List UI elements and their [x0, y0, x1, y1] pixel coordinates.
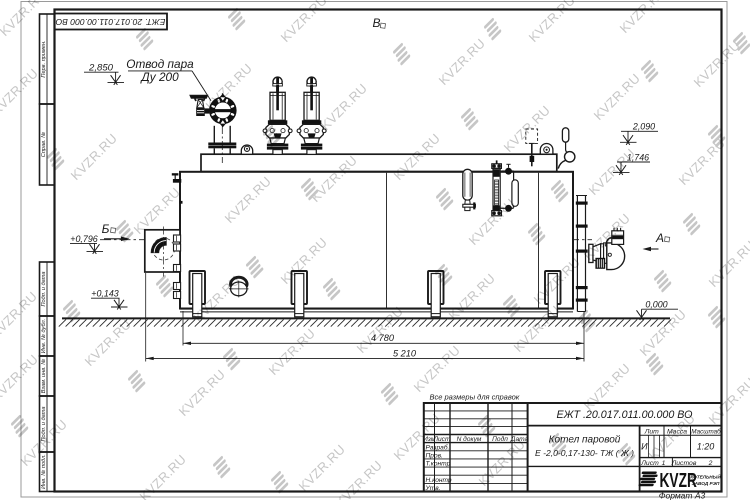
- svg-text:+0,796: +0,796: [70, 234, 97, 244]
- svg-text:KVZR.RU: KVZR.RU: [436, 36, 488, 88]
- svg-text:KVZR.RU: KVZR.RU: [333, 458, 385, 500]
- svg-text:Взам. инв. №: Взам. инв. №: [41, 359, 47, 394]
- svg-text:Подп. и дата: Подп. и дата: [41, 271, 47, 306]
- svg-text:KVZR.RU: KVZR.RU: [617, 0, 669, 36]
- svg-text:KVZR.RU: KVZR.RU: [591, 71, 643, 123]
- svg-text:KVZR.RU: KVZR.RU: [581, 361, 633, 413]
- svg-text:KVZR.RU: KVZR.RU: [706, 238, 750, 290]
- svg-text:1: 1: [662, 460, 666, 467]
- svg-text:0,000: 0,000: [645, 300, 667, 310]
- svg-text:Инв. № подл.: Инв. № подл.: [41, 454, 47, 489]
- svg-text:Формат А3: Формат А3: [659, 491, 706, 500]
- svg-text:1:20: 1:20: [697, 442, 715, 452]
- svg-text:Инв. № дубл.: Инв. № дубл.: [41, 319, 47, 353]
- svg-text:Подп: Подп: [492, 435, 508, 443]
- svg-text:KVZR.RU: KVZR.RU: [586, 146, 638, 198]
- svg-text:Масштаб: Масштаб: [691, 427, 721, 435]
- svg-text:KVZR.RU: KVZR.RU: [278, 0, 330, 45]
- svg-text:2,090: 2,090: [632, 122, 655, 132]
- svg-text:KVZR.RU: KVZR.RU: [266, 326, 318, 378]
- svg-text:ЗАВОД РЭП: ЗАВОД РЭП: [692, 481, 720, 486]
- svg-text:KVZR.RU: KVZR.RU: [137, 452, 189, 500]
- svg-text:KVZR.RU: KVZR.RU: [318, 81, 370, 133]
- svg-text:2: 2: [708, 460, 713, 467]
- svg-text:KVZR.RU: KVZR.RU: [411, 343, 463, 395]
- svg-text:KVZR.RU: KVZR.RU: [176, 367, 228, 419]
- svg-text:KVZR.RU: KVZR.RU: [0, 289, 40, 341]
- svg-text:В: В: [372, 16, 380, 30]
- svg-text:KVZR.RU: KVZR.RU: [526, 0, 578, 45]
- svg-text:Ду 200: Ду 200: [139, 70, 179, 84]
- svg-text:N докум: N докум: [457, 435, 482, 443]
- svg-text:KVZR.RU: KVZR.RU: [68, 131, 120, 183]
- svg-text:ЕЖТ. 20.017.011.00.000 ВО: ЕЖТ. 20.017.011.00.000 ВО: [55, 17, 165, 27]
- svg-text:А: А: [655, 231, 664, 245]
- svg-text:Пров.: Пров.: [426, 452, 444, 459]
- svg-text:Перв. примен.: Перв. примен.: [41, 40, 47, 77]
- svg-text:КОТЕЛЬНЫЙ: КОТЕЛЬНЫЙ: [690, 473, 721, 480]
- svg-text:KVZR.RU: KVZR.RU: [691, 38, 743, 90]
- svg-text:Все размеры для справок: Все размеры для справок: [430, 393, 520, 402]
- svg-text:KVZR.RU: KVZR.RU: [706, 375, 750, 427]
- svg-text:+0,143: +0,143: [91, 289, 118, 299]
- svg-text:Лит: Лит: [644, 428, 659, 435]
- svg-text:Т.контр: Т.контр: [426, 461, 451, 468]
- svg-text:Б: Б: [102, 222, 110, 236]
- svg-text:KVZR.RU: KVZR.RU: [637, 307, 689, 359]
- svg-text:5 210: 5 210: [393, 348, 417, 358]
- svg-text:Справ. №: Справ. №: [41, 132, 47, 157]
- svg-text:ЕЖТ .20.017.011.00.000 ВО: ЕЖТ .20.017.011.00.000 ВО: [557, 409, 694, 421]
- svg-text:KVZR.RU: KVZR.RU: [296, 442, 348, 494]
- svg-text:Утв.: Утв.: [425, 485, 441, 492]
- svg-text:Лист: Лист: [433, 436, 451, 443]
- svg-text:Листов: Листов: [671, 460, 697, 467]
- svg-text:KVZR.RU: KVZR.RU: [82, 317, 134, 369]
- svg-text:Разраб.: Разраб.: [426, 443, 450, 451]
- svg-text:KVZR.RU: KVZR.RU: [0, 0, 49, 39]
- svg-text:KVZR.RU: KVZR.RU: [476, 437, 528, 489]
- svg-text:Н.контр: Н.контр: [426, 477, 452, 484]
